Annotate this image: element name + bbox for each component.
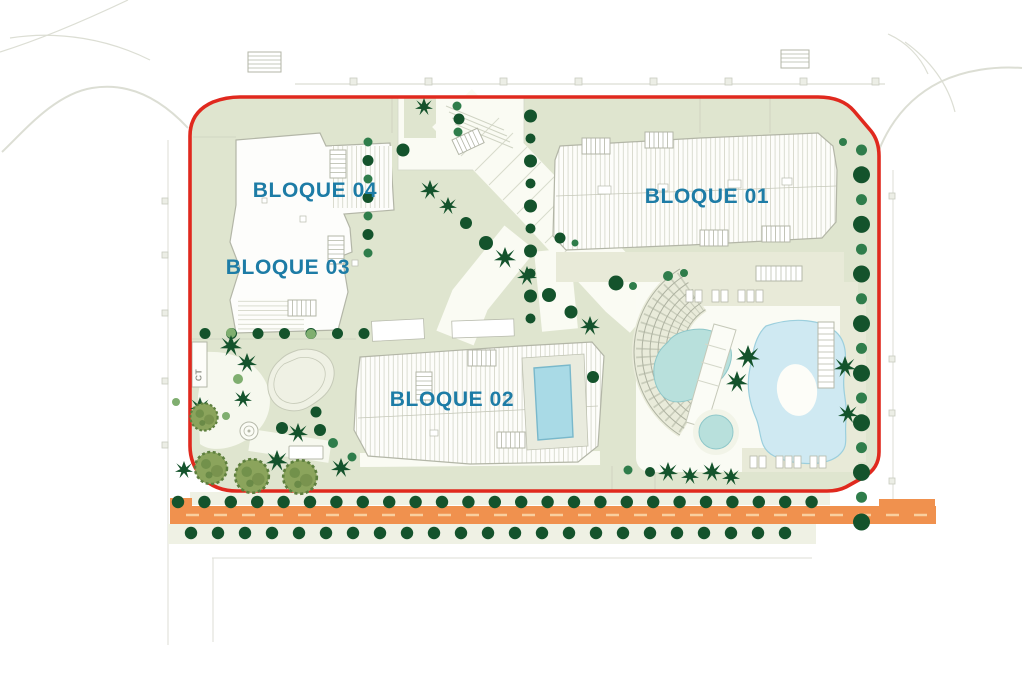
tree [526, 179, 536, 189]
tree [856, 393, 867, 404]
tree [853, 464, 870, 481]
tree [565, 306, 578, 319]
tree [752, 527, 764, 539]
tree [524, 245, 537, 258]
label-bloque-01: BLOQUE 01 [645, 185, 769, 208]
tree [629, 282, 637, 290]
tree [645, 467, 655, 477]
canopy-tree [283, 460, 317, 494]
tree [454, 128, 463, 137]
tree [853, 514, 870, 531]
tree [726, 496, 738, 508]
tree [172, 496, 184, 508]
label-bloque-04: BLOQUE 04 [253, 179, 377, 202]
tree [542, 288, 556, 302]
tree [555, 233, 566, 244]
tree [374, 527, 386, 539]
tree [401, 527, 413, 539]
tree [644, 527, 656, 539]
tree [524, 155, 537, 168]
tree [856, 442, 867, 453]
tree [428, 527, 440, 539]
tree [454, 114, 465, 125]
tree [526, 224, 536, 234]
tree [357, 496, 369, 508]
tree [332, 328, 343, 339]
tree [212, 527, 224, 539]
tree [587, 371, 599, 383]
crosswalk-stairs-top-left [248, 52, 281, 72]
tree [482, 527, 494, 539]
tree [779, 527, 791, 539]
fountain [240, 422, 258, 440]
tree [251, 496, 263, 508]
tree [515, 496, 527, 508]
tree [853, 216, 870, 233]
tree [856, 492, 867, 503]
tree [330, 496, 342, 508]
tree [172, 398, 180, 406]
tree [460, 217, 472, 229]
tree [753, 496, 765, 508]
tree [594, 496, 606, 508]
tree [536, 527, 548, 539]
bench [289, 446, 323, 459]
tree [524, 110, 537, 123]
tree [805, 496, 817, 508]
transformer-label: CT [194, 369, 204, 382]
tree [222, 412, 230, 420]
tree [479, 236, 493, 250]
tree [489, 496, 501, 508]
tree [647, 496, 659, 508]
tree [311, 407, 322, 418]
tree [671, 527, 683, 539]
tree [397, 144, 410, 157]
tree [363, 229, 374, 240]
tree [779, 496, 791, 508]
tree [462, 496, 474, 508]
tree [239, 527, 251, 539]
tree [663, 271, 673, 281]
tree [856, 145, 867, 156]
transformer-box: CT [192, 342, 207, 387]
tree [409, 496, 421, 508]
canopy-tree [235, 459, 269, 493]
tree [233, 374, 243, 384]
tree [568, 496, 580, 508]
tree [277, 496, 289, 508]
tree [364, 249, 373, 258]
crosswalk-stairs-top-right [781, 50, 809, 68]
tree [526, 314, 536, 324]
tree [348, 453, 357, 462]
tree [276, 422, 288, 434]
tree [624, 466, 633, 475]
tree [225, 496, 237, 508]
pergola-vertical [818, 322, 834, 388]
tree [253, 328, 264, 339]
tree [853, 414, 870, 431]
tree [526, 134, 536, 144]
tree [200, 328, 211, 339]
pool-round [699, 415, 733, 449]
tree [856, 343, 867, 354]
tree [621, 496, 633, 508]
tree [617, 527, 629, 539]
tree [524, 200, 537, 213]
tree [541, 496, 553, 508]
tree [320, 527, 332, 539]
tree [698, 527, 710, 539]
tree [524, 290, 537, 303]
tree [306, 329, 316, 339]
tree [856, 194, 867, 205]
tree [680, 269, 688, 277]
canopy-tree [190, 403, 217, 430]
site-plan-page: CT [0, 0, 1024, 698]
tree [347, 527, 359, 539]
tree [509, 527, 521, 539]
tree [383, 496, 395, 508]
tree [304, 496, 316, 508]
tree [185, 527, 197, 539]
tree [314, 424, 326, 436]
tree [856, 244, 867, 255]
tree [673, 496, 685, 508]
label-bloque-03: BLOQUE 03 [226, 256, 350, 279]
tree [364, 212, 373, 221]
tree [455, 527, 467, 539]
tree [453, 102, 462, 111]
tree [853, 266, 870, 283]
pergola-horizontal [756, 266, 802, 281]
tree [853, 315, 870, 332]
tree [609, 276, 624, 291]
tree [328, 438, 338, 448]
canopy-tree [195, 452, 227, 484]
tree [363, 155, 374, 166]
label-bloque-02: BLOQUE 02 [390, 388, 514, 411]
tree [839, 138, 847, 146]
tree [266, 527, 278, 539]
tree [590, 527, 602, 539]
tree [563, 527, 575, 539]
tree [436, 496, 448, 508]
tree [853, 365, 870, 382]
tree [853, 166, 870, 183]
tree [725, 527, 737, 539]
tree [700, 496, 712, 508]
pool-rooftop [534, 365, 573, 440]
tree [364, 138, 373, 147]
tree [198, 496, 210, 508]
site-plan-svg: CT [0, 0, 1024, 698]
tree [359, 328, 370, 339]
tree [572, 240, 579, 247]
tree [856, 293, 867, 304]
tree [293, 527, 305, 539]
tree [279, 328, 290, 339]
palm-tree [175, 461, 193, 478]
